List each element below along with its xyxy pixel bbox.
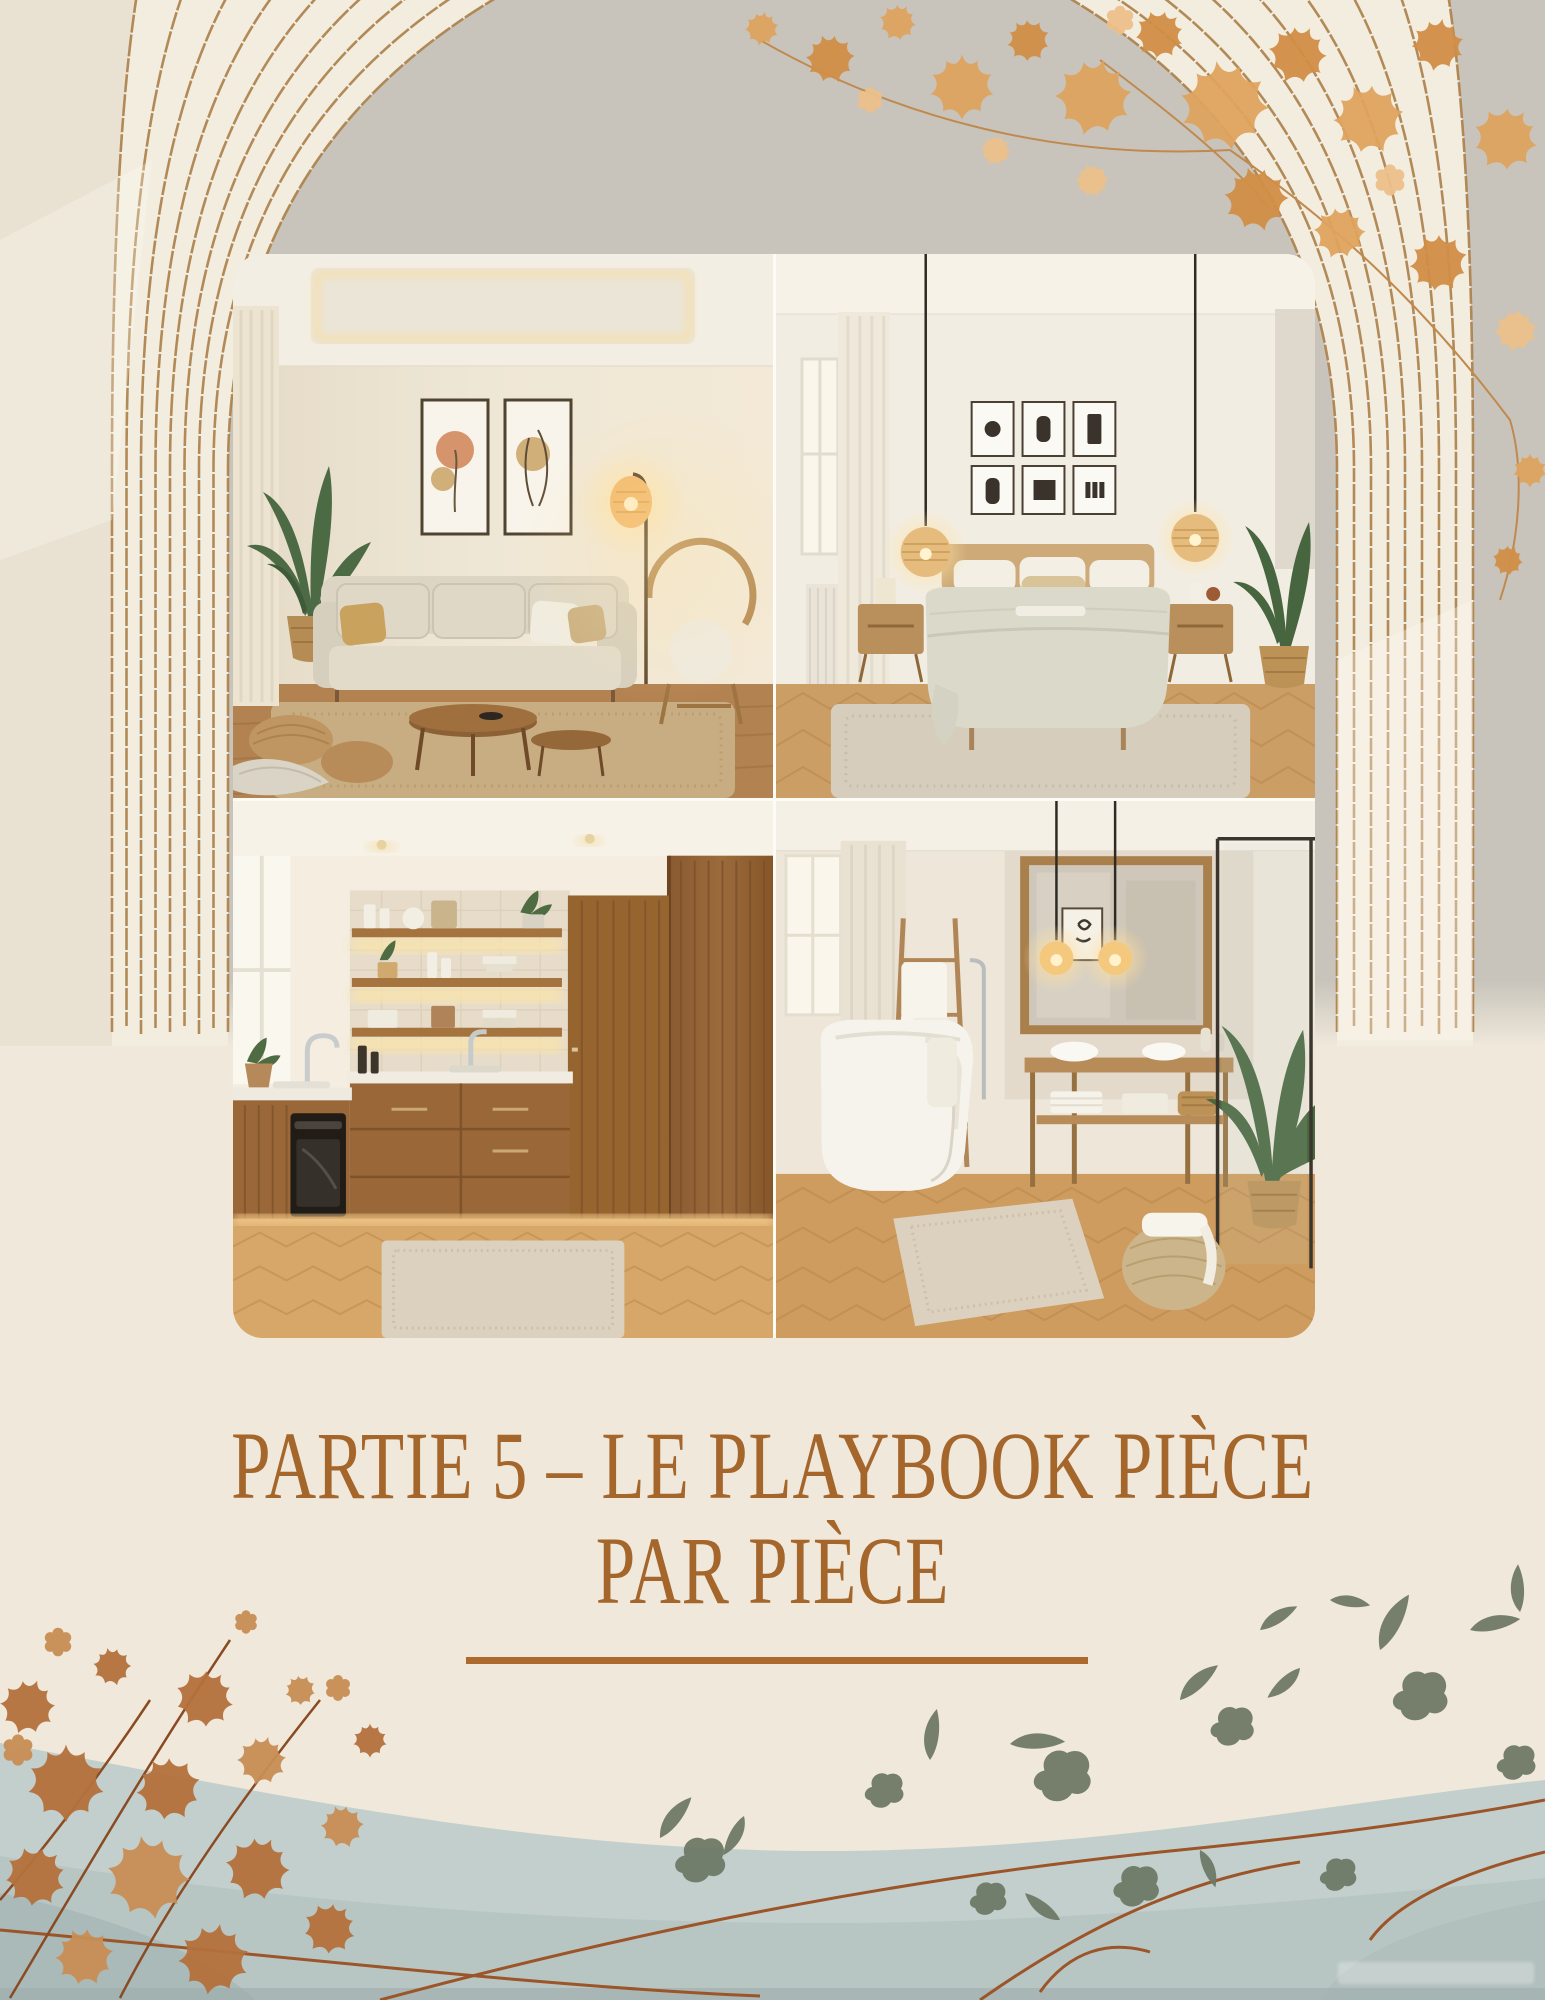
photo-collage (233, 254, 1315, 1338)
window (802, 359, 840, 694)
book-page: PARTIE 5 – LE PLAYBOOK PIÈCE PAR PIÈCE (0, 0, 1545, 2000)
section-title: PARTIE 5 – LE PLAYBOOK PIÈCE PAR PIÈCE (0, 1413, 1545, 1623)
section-title-line2: PAR PIÈCE (201, 1518, 1344, 1623)
watermark (1338, 1962, 1534, 1984)
towel-on-tub (927, 1038, 957, 1108)
rug (382, 1241, 625, 1338)
title-divider (466, 1657, 1088, 1664)
coved-ceiling (233, 254, 773, 366)
photo-kitchen (233, 801, 773, 1338)
glass-partition (1218, 839, 1315, 1269)
photo-bedroom (776, 254, 1315, 798)
floor (233, 1215, 773, 1338)
photo-bathroom (776, 801, 1315, 1338)
window (786, 856, 841, 1015)
photo-living-room (233, 254, 773, 798)
section-title-line1: PARTIE 5 – LE PLAYBOOK PIÈCE (201, 1413, 1344, 1518)
bed (926, 544, 1171, 750)
